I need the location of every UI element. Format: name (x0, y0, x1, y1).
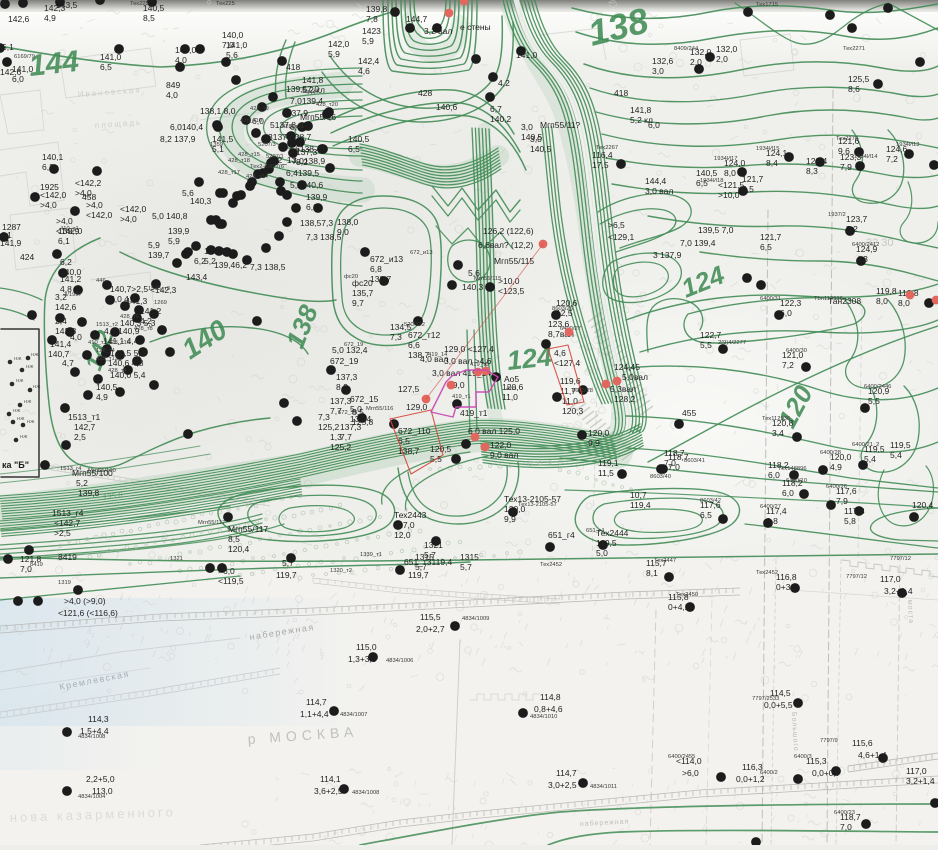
svg-text:4834/1007: 4834/1007 (340, 712, 367, 718)
svg-text:4,2: 4,2 (498, 78, 510, 88)
svg-text:143,0: 143,0 (175, 45, 197, 55)
svg-text:фс20: фс20 (344, 274, 358, 280)
svg-text:117,0: 117,0 (906, 766, 927, 776)
svg-text:НЖ: НЖ (20, 434, 28, 439)
svg-text:ка "Б": ка "Б" (2, 460, 29, 470)
svg-text:>4,0: >4,0 (120, 214, 137, 224)
svg-text:428: 428 (418, 88, 432, 98)
svg-text:143,4: 143,4 (186, 272, 208, 282)
svg-text:4,7: 4,7 (62, 358, 74, 368)
svg-text:<119,5: <119,5 (218, 576, 244, 586)
svg-text:>4,0: >4,0 (40, 200, 57, 210)
svg-text:5,8: 5,8 (844, 516, 856, 526)
svg-text:139,9: 139,9 (306, 192, 328, 202)
svg-text:143,5: 143,5 (56, 0, 78, 10)
svg-text:6,2: 6,2 (42, 162, 54, 172)
svg-text:5,9: 5,9 (362, 36, 374, 46)
svg-text:6,0140,4: 6,0140,4 (170, 122, 203, 132)
svg-text:Тех1715: Тех1715 (756, 2, 778, 8)
svg-text:моста: моста (906, 600, 914, 625)
svg-text:122,3: 122,3 (780, 298, 802, 308)
svg-text:8,5: 8,5 (143, 13, 155, 23)
svg-text:1513_т3: 1513_т3 (148, 286, 170, 292)
svg-text:<123,5: <123,5 (498, 286, 525, 296)
svg-text:8,0: 8,0 (724, 168, 736, 178)
svg-text:6400/2: 6400/2 (760, 770, 778, 776)
svg-text:140,3: 140,3 (190, 196, 212, 206)
svg-text:7,2: 7,2 (782, 360, 794, 370)
svg-text:7,0: 7,0 (664, 458, 676, 468)
svg-text:7,0: 7,0 (222, 40, 234, 50)
svg-text:428_т18: 428_т18 (228, 158, 250, 164)
svg-text:7,8: 7,8 (366, 14, 378, 24)
svg-text:6,7: 6,7 (490, 104, 502, 114)
svg-text:117,0: 117,0 (880, 574, 901, 584)
svg-text:9,9: 9,9 (504, 514, 516, 524)
svg-text:4834/1008: 4834/1008 (352, 790, 379, 796)
svg-text:137,3: 137,3 (296, 147, 318, 157)
svg-text:НЖ: НЖ (17, 416, 25, 421)
svg-text:9,0 вал: 9,0 вал (490, 450, 518, 460)
svg-text:>4,0: >4,0 (86, 200, 103, 210)
svg-text:126,2 (122,6): 126,2 (122,6) (483, 226, 534, 236)
svg-text:7,3: 7,3 (390, 332, 402, 342)
svg-text:140,2: 140,2 (490, 114, 512, 124)
svg-text:Тех2267: Тех2267 (596, 145, 618, 151)
svg-text:114,8: 114,8 (540, 692, 561, 702)
svg-text:НЖ: НЖ (31, 352, 39, 357)
svg-text:6,5: 6,5 (348, 144, 360, 154)
svg-text:6,0: 6,0 (782, 488, 794, 498)
svg-text:7797/12: 7797/12 (890, 556, 911, 562)
svg-text:140,1: 140,1 (42, 152, 64, 162)
svg-text:141,2: 141,2 (60, 274, 82, 284)
svg-text:6,8: 6,8 (766, 516, 778, 526)
svg-text:8603/41: 8603/41 (684, 458, 705, 464)
svg-text:132,6: 132,6 (652, 56, 674, 66)
svg-text:121,7: 121,7 (742, 174, 764, 184)
svg-text:4834/1011: 4834/1011 (590, 784, 617, 790)
svg-text:<129,1: <129,1 (608, 232, 635, 242)
svg-text:Тех225: Тех225 (130, 1, 149, 7)
svg-text:419_14: 419_14 (428, 352, 448, 358)
svg-text:428_т17: 428_т17 (218, 170, 240, 176)
svg-text:4834/1009: 4834/1009 (462, 616, 489, 622)
svg-text:Мгп55/100: Мгп55/100 (88, 468, 116, 474)
svg-text:1934И15: 1934И15 (756, 146, 780, 152)
svg-text:4834/1010: 4834/1010 (530, 714, 557, 720)
svg-text:4,0: 4,0 (166, 90, 178, 100)
svg-text:2,0: 2,0 (716, 54, 728, 64)
svg-text:6,5: 6,5 (742, 184, 754, 194)
svg-text:6400/28: 6400/28 (820, 450, 841, 456)
svg-text:8,6: 8,6 (848, 84, 860, 94)
svg-text:5207/1: 5207/1 (266, 154, 284, 160)
svg-text:Мгп55/11?: Мгп55/11? (540, 120, 580, 130)
svg-text:8,5: 8,5 (228, 534, 240, 544)
svg-text:8,0: 8,0 (876, 296, 888, 306)
svg-text:1423: 1423 (362, 26, 381, 36)
svg-text:138,1 8,0: 138,1 8,0 (200, 106, 236, 116)
svg-text:122,7: 122,7 (700, 330, 722, 340)
svg-text:8603/40: 8603/40 (650, 474, 671, 480)
svg-text:6400/10: 6400/10 (786, 478, 807, 484)
svg-text:3,2 вал: 3,2 вал (424, 26, 452, 36)
svg-text:5,7: 5,7 (460, 562, 472, 572)
svg-text:418: 418 (286, 62, 300, 72)
svg-text:Тех2450: Тех2450 (676, 592, 698, 598)
svg-text:2,0+2,7: 2,0+2,7 (416, 624, 445, 634)
svg-text:139,8: 139,8 (78, 488, 100, 498)
svg-text:122,0: 122,0 (490, 440, 512, 450)
svg-text:139,46,2: 139,46,2 (214, 260, 247, 270)
svg-text:8,0: 8,0 (898, 298, 910, 308)
svg-text:НЖ: НЖ (33, 384, 41, 389)
svg-text:>4,0: >4,0 (56, 216, 73, 226)
svg-text:6,6: 6,6 (408, 340, 420, 350)
svg-text:0,0+0,7: 0,0+0,7 (812, 768, 841, 778)
svg-text:8,4: 8,4 (766, 158, 778, 168)
svg-text:120,4: 120,4 (912, 500, 934, 510)
svg-text:6400/27: 6400/27 (760, 504, 781, 510)
svg-text:<142,0: <142,0 (120, 204, 147, 214)
svg-text:3,2+1,4: 3,2+1,4 (884, 586, 913, 596)
svg-text:141,3: 141,3 (126, 296, 148, 306)
svg-text:144,7: 144,7 (406, 14, 428, 24)
svg-text:<142,0: <142,0 (86, 210, 113, 220)
svg-text:8603/42: 8603/42 (700, 498, 721, 504)
svg-text:5,9: 5,9 (328, 49, 340, 59)
svg-text:>6,5: >6,5 (608, 220, 625, 230)
svg-text:115,0: 115,0 (356, 642, 377, 652)
svg-text:114,1: 114,1 (320, 774, 341, 784)
svg-text:1321: 1321 (424, 540, 443, 550)
svg-text:117,8: 117,8 (844, 506, 865, 516)
svg-text:1934И18: 1934И18 (700, 178, 724, 184)
svg-text:6,0: 6,0 (306, 202, 318, 212)
svg-text:1339_т1: 1339_т1 (360, 552, 382, 558)
svg-text:<121,6 (<116,6): <121,6 (<116,6) (58, 608, 118, 618)
svg-text:5,2: 5,2 (846, 224, 858, 234)
svg-text:142,0: 142,0 (328, 39, 350, 49)
svg-text:6,6вал? (12,2): 6,6вал? (12,2) (478, 240, 533, 250)
svg-text:455: 455 (682, 408, 696, 418)
svg-text:9,7: 9,7 (352, 298, 364, 308)
svg-text:140,0: 140,0 (222, 30, 244, 40)
svg-text:6,2: 6,2 (60, 257, 72, 267)
svg-text:6400/31: 6400/31 (760, 296, 781, 302)
svg-text:119,1: 119,1 (598, 458, 619, 468)
svg-text:Мгп55/115: Мгп55/115 (494, 256, 534, 266)
svg-text:7,9: 7,9 (840, 162, 852, 172)
svg-text:428_т9: 428_т9 (120, 314, 139, 320)
svg-text:2,2+5,0: 2,2+5,0 (86, 774, 115, 784)
svg-text:6,0: 6,0 (780, 308, 792, 318)
svg-text:0+3,2: 0+3,2 (776, 582, 798, 592)
svg-text:672_т12: 672_т12 (408, 330, 441, 340)
svg-text:7,0: 7,0 (840, 822, 852, 832)
svg-text:3,0: 3,0 (530, 134, 542, 144)
svg-text:НЖ: НЖ (13, 408, 21, 413)
svg-text:1934И17: 1934И17 (714, 156, 738, 162)
svg-text:137,3: 137,3 (336, 372, 358, 382)
svg-text:8409/244: 8409/244 (674, 46, 699, 52)
svg-text:0+4,2: 0+4,2 (668, 602, 690, 612)
svg-text:8603/26: 8603/26 (552, 306, 573, 312)
svg-text:1321: 1321 (170, 556, 183, 562)
svg-text:672_15: 672_15 (338, 410, 357, 416)
svg-text:144: 144 (27, 45, 81, 83)
svg-text:8,2: 8,2 (296, 157, 308, 167)
svg-text:138,0: 138,0 (337, 217, 359, 227)
svg-text:139,5 7,0: 139,5 7,0 (698, 225, 734, 235)
svg-text:7,3 138,5: 7,3 138,5 (250, 262, 286, 272)
svg-text:5,5: 5,5 (868, 396, 880, 406)
svg-text:142,6: 142,6 (55, 302, 77, 312)
svg-text:123,7: 123,7 (846, 214, 868, 224)
svg-text:2(9)4/2277: 2(9)4/2277 (718, 340, 746, 346)
svg-text:7,3: 7,3 (318, 412, 330, 422)
svg-text:142,4: 142,4 (358, 56, 380, 66)
svg-text:3 137,9: 3 137,9 (653, 250, 682, 260)
svg-text:НЖ: НЖ (16, 378, 24, 383)
svg-text:6400/2455: 6400/2455 (668, 754, 695, 760)
svg-text:140,6: 140,6 (204, 246, 226, 256)
svg-text:117,0: 117,0 (394, 520, 415, 530)
svg-text:118,7: 118,7 (664, 448, 685, 458)
svg-text:651_г4: 651_г4 (548, 530, 575, 540)
svg-text:3,0: 3,0 (652, 66, 664, 76)
svg-text:<142,7: <142,7 (54, 518, 81, 528)
svg-text:Тех2270: Тех2270 (836, 136, 858, 142)
svg-text:10,7: 10,7 (630, 490, 647, 500)
svg-text:114,7: 114,7 (556, 768, 577, 778)
svg-text:4,0: 4,0 (70, 332, 82, 342)
svg-text:651_т3119,4: 651_т3119,4 (404, 557, 452, 567)
svg-text:17,5: 17,5 (592, 160, 609, 170)
svg-text:1,3: 1,3 (330, 432, 342, 442)
svg-text:651_г4: 651_г4 (586, 528, 605, 534)
svg-text:424: 424 (20, 252, 34, 262)
svg-text:3/1997: 3/1997 (64, 292, 82, 298)
svg-text:е стены: е стены (460, 22, 491, 32)
svg-text:1513_т1: 1513_т1 (68, 412, 101, 422)
svg-text:418: 418 (614, 88, 628, 98)
svg-text:3,4: 3,4 (772, 428, 784, 438)
svg-text:115,5: 115,5 (420, 612, 441, 622)
svg-text:4,9: 4,9 (96, 392, 108, 402)
svg-text:129,0 <127,4: 129,0 <127,4 (444, 344, 494, 354)
svg-text:119,7: 119,7 (276, 570, 297, 580)
svg-text:Тех13-2105-57: Тех13-2105-57 (518, 502, 557, 508)
svg-text:<127,4: <127,4 (554, 358, 581, 368)
svg-text:4834/1004: 4834/1004 (78, 794, 106, 800)
svg-text:119,7: 119,7 (408, 570, 429, 580)
svg-text:4,3: 4,3 (856, 254, 868, 264)
svg-text:НЖ: НЖ (14, 356, 22, 361)
svg-text:428_т16: 428_т16 (108, 340, 130, 346)
svg-text:2,5: 2,5 (74, 432, 86, 442)
svg-text:119,4: 119,4 (630, 500, 651, 510)
svg-text:125,2: 125,2 (330, 442, 352, 452)
svg-text:129,0: 129,0 (406, 402, 428, 412)
svg-text:119,5: 119,5 (890, 440, 911, 450)
svg-text:6400/21_2: 6400/21_2 (852, 442, 879, 448)
svg-text:5,0вал: 5,0вал (622, 372, 648, 382)
svg-text:5,7: 5,7 (282, 558, 294, 568)
svg-text:119,5: 119,5 (596, 538, 617, 548)
svg-text:5,2: 5,2 (76, 478, 88, 488)
svg-text:125,5: 125,5 (848, 74, 870, 84)
svg-text:7797/12: 7797/12 (846, 574, 867, 580)
svg-text:3,6+2,5: 3,6+2,5 (314, 786, 343, 796)
svg-text:7,3 138,5: 7,3 138,5 (306, 232, 342, 242)
svg-text:5,0: 5,0 (596, 548, 608, 558)
svg-text:7797/2533: 7797/2533 (752, 696, 779, 702)
svg-text:6,0: 6,0 (12, 74, 24, 84)
svg-text:141,4: 141,4 (50, 339, 72, 349)
svg-text:3,0 вал: 3,0 вал (645, 186, 673, 196)
svg-text:140,5: 140,5 (696, 168, 718, 178)
svg-text:1319: 1319 (58, 580, 71, 586)
svg-text:Мгп55/16: Мгп55/16 (300, 112, 336, 122)
svg-text:141,8: 141,8 (630, 105, 652, 115)
svg-text:>2,5: >2,5 (54, 528, 71, 538)
svg-text:1269: 1269 (154, 300, 167, 306)
svg-text:141,2: 141,2 (140, 306, 162, 316)
svg-text:11,5: 11,5 (598, 468, 614, 478)
svg-text:142,7: 142,7 (74, 422, 96, 432)
svg-text:>10,0: >10,0 (718, 190, 740, 200)
svg-text:Тех2452: Тех2452 (756, 570, 778, 576)
svg-text:428_т4: 428_т4 (108, 368, 128, 374)
svg-text:128_т4: 128_т4 (96, 348, 116, 354)
svg-text:Тех2443: Тех2443 (394, 510, 427, 520)
svg-text:Тех148896: Тех148896 (778, 466, 807, 472)
svg-text:1934И14: 1934И14 (854, 154, 878, 160)
svg-text:141,0: 141,0 (12, 64, 34, 74)
svg-text:Мгп55/117: Мгп55/117 (228, 524, 268, 534)
svg-text:4,6: 4,6 (358, 66, 370, 76)
svg-text:120,0: 120,0 (588, 428, 610, 438)
svg-text:5,9: 5,9 (148, 240, 160, 250)
svg-text:5,3вал: 5,3вал (610, 384, 636, 394)
svg-text:140,7>2,5: 140,7>2,5 (110, 284, 148, 294)
svg-text:114,3: 114,3 (88, 714, 109, 724)
svg-text:124,45: 124,45 (614, 362, 640, 372)
svg-text:138,7: 138,7 (370, 274, 392, 284)
svg-text:8419: 8419 (30, 562, 43, 568)
svg-text:6400/3: 6400/3 (794, 754, 812, 760)
svg-text:6400/2446: 6400/2446 (864, 384, 891, 390)
svg-text:1513_т2: 1513_т2 (96, 322, 118, 328)
svg-text:Тех2447: Тех2447 (654, 558, 676, 564)
svg-text:8,2 137,9: 8,2 137,9 (160, 134, 196, 144)
svg-text:0,8+4,6: 0,8+4,6 (534, 704, 563, 714)
svg-text:6,5: 6,5 (100, 62, 112, 72)
svg-text:140,5: 140,5 (348, 134, 370, 144)
svg-text:7,2: 7,2 (886, 154, 898, 164)
svg-text:1513_г4: 1513_г4 (60, 466, 82, 472)
svg-text:5207/3: 5207/3 (258, 142, 276, 148)
svg-text:114,7: 114,7 (306, 697, 327, 707)
svg-text:Тbн112936: Тbн112936 (814, 296, 843, 302)
svg-text:123,4: 123,4 (806, 156, 828, 166)
svg-text:6169/79: 6169/79 (14, 54, 35, 60)
svg-text:116,4: 116,4 (592, 150, 613, 160)
svg-text:Мгп55/115: Мгп55/115 (474, 276, 501, 282)
svg-text:444: 444 (306, 90, 316, 96)
svg-text:<142,0: <142,0 (40, 190, 67, 200)
svg-text:428_т8: 428_т8 (134, 326, 153, 332)
svg-text:4,6+1,4: 4,6+1,4 (858, 750, 887, 760)
svg-text:8419: 8419 (58, 552, 77, 562)
svg-text:4834/1006: 4834/1006 (386, 658, 413, 664)
svg-text:140,5: 140,5 (96, 382, 118, 392)
svg-text:140,5: 140,5 (530, 144, 552, 154)
svg-text:1287: 1287 (2, 222, 21, 232)
svg-text:Мгп55/117: Мгп55/117 (198, 520, 225, 526)
svg-text:128,2: 128,2 (614, 394, 636, 404)
svg-text:2,0: 2,0 (690, 57, 702, 67)
svg-text:5,9: 5,9 (168, 236, 180, 246)
svg-text:6,8: 6,8 (370, 264, 382, 274)
svg-text:849: 849 (166, 80, 180, 90)
svg-text:1315: 1315 (460, 552, 479, 562)
svg-text:139,9: 139,9 (168, 226, 190, 236)
svg-text:672_110: 672_110 (398, 426, 431, 436)
svg-text:428_т20: 428_т20 (316, 102, 338, 108)
svg-text:6400/30: 6400/30 (786, 348, 807, 354)
svg-text:428_т21: 428_т21 (282, 124, 304, 130)
svg-text:520/322: 520/322 (404, 322, 425, 328)
svg-text:141,0: 141,0 (100, 52, 122, 62)
svg-text:>6,0: >6,0 (218, 566, 235, 576)
svg-text:125,2: 125,2 (318, 422, 340, 432)
svg-text:672_и13: 672_и13 (410, 250, 433, 256)
svg-text:132,0: 132,0 (716, 44, 738, 54)
svg-text:5,5: 5,5 (700, 340, 712, 350)
svg-text:140,3: 140,3 (462, 282, 484, 292)
svg-text:Тех225: Тех225 (216, 1, 235, 7)
svg-text:8,3: 8,3 (806, 166, 818, 176)
svg-text:428_т14: 428_т14 (246, 174, 269, 180)
svg-text:3,2+1,4: 3,2+1,4 (906, 776, 935, 786)
svg-text:4,0: 4,0 (175, 55, 187, 65)
svg-text:5,2140,6: 5,2140,6 (290, 180, 323, 190)
svg-text:6400/26: 6400/26 (826, 484, 847, 490)
svg-text:419_т1: 419_т1 (452, 394, 471, 400)
svg-text:135,7: 135,7 (352, 288, 374, 298)
svg-text:Тех2271: Тех2271 (843, 46, 865, 52)
svg-text:5,6: 5,6 (226, 50, 238, 60)
svg-text:7,0 139,4: 7,0 139,4 (680, 238, 716, 248)
svg-text:1937/2: 1937/2 (828, 212, 846, 218)
svg-text:6,5: 6,5 (760, 242, 772, 252)
svg-text:2,4: 2,4 (55, 316, 67, 326)
svg-text:5,4: 5,4 (864, 454, 876, 464)
svg-text:Тех2452: Тех2452 (540, 562, 562, 568)
svg-text:139,7: 139,7 (148, 250, 170, 260)
svg-text:6,5: 6,5 (700, 510, 712, 520)
svg-text:1320_т2: 1320_т2 (330, 568, 352, 574)
svg-text:4,9: 4,9 (44, 13, 56, 23)
svg-text:1513_г4: 1513_г4 (52, 508, 84, 518)
svg-text:Ао5: Ао5 (506, 386, 516, 392)
svg-text:Тех2-696/7(6: Тех2-696/7(6 (250, 164, 284, 170)
svg-text:138,7: 138,7 (290, 132, 312, 142)
svg-text:142,6: 142,6 (8, 14, 30, 24)
